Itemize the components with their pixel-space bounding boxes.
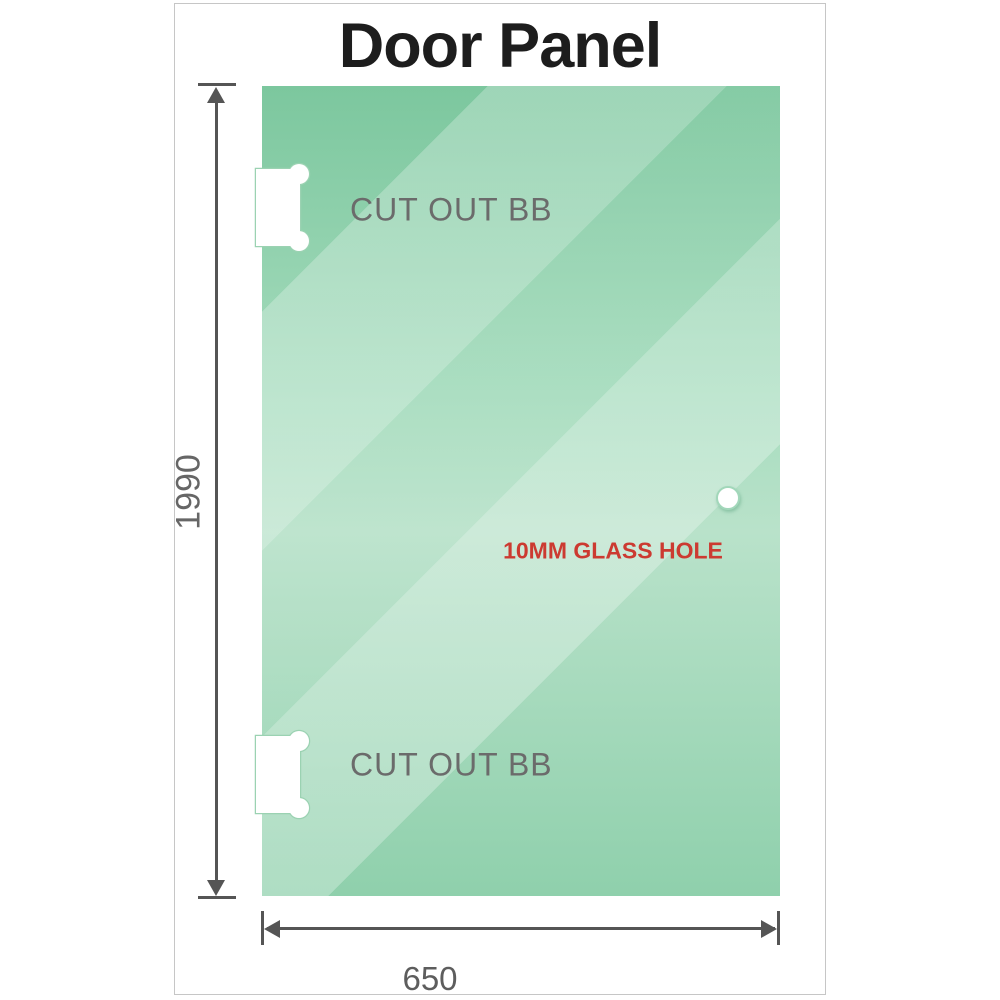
height-dim-cap-bottom: [198, 896, 236, 899]
cutout-top-label: CUT OUT BB: [350, 192, 553, 229]
page-title: Door Panel: [174, 10, 826, 82]
width-dim-value: 650: [402, 960, 457, 998]
width-dim-tick-right: [777, 911, 780, 945]
arrow-left-icon: [264, 920, 280, 938]
height-dim-value: 1990: [170, 454, 209, 530]
glass-hole-circle: [716, 486, 740, 510]
height-dim-cap-top: [198, 83, 236, 86]
cutout-bottom-label: CUT OUT BB: [350, 747, 553, 784]
arrow-down-icon: [207, 880, 225, 896]
hinge-cutout-top-shape: [262, 160, 314, 255]
arrow-up-icon: [207, 87, 225, 103]
glass-hole-label: 10MM GLASS HOLE: [503, 538, 723, 565]
height-dim-line: [215, 92, 218, 884]
hinge-cutout-bottom-shape: [262, 727, 314, 822]
door-panel-diagram: Door Panel CUT OUT BB CUT OUT BB 10MM GL…: [0, 0, 1000, 1000]
arrow-right-icon: [761, 920, 777, 938]
width-dim-line: [267, 927, 775, 930]
